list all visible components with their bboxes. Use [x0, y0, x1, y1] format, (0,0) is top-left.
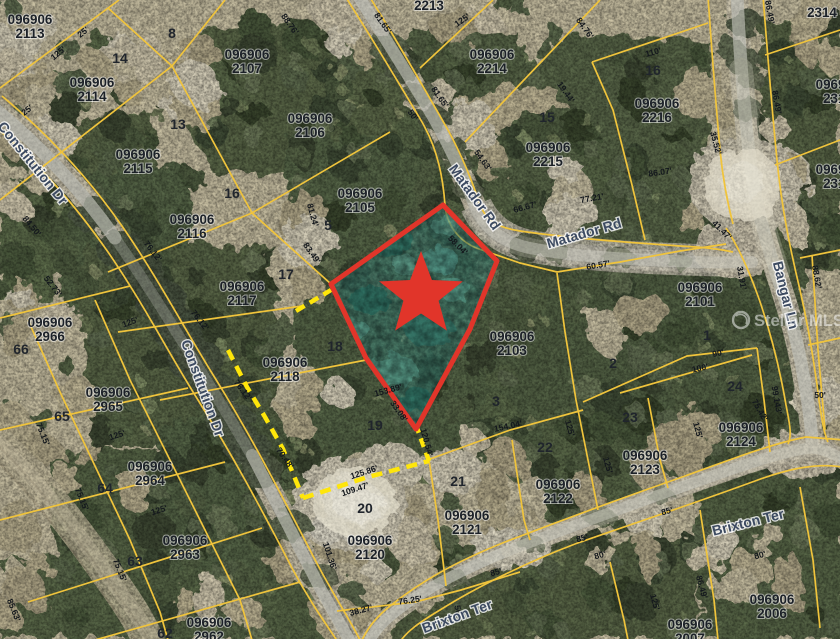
svg-text:2123: 2123: [630, 462, 660, 477]
svg-text:64: 64: [97, 480, 113, 496]
svg-text:096906: 096906: [263, 355, 308, 370]
svg-text:2103: 2103: [497, 343, 527, 358]
svg-text:096906: 096906: [750, 592, 795, 607]
svg-text:2116: 2116: [177, 226, 206, 241]
svg-text:24: 24: [727, 378, 743, 394]
svg-text:13: 13: [170, 116, 186, 132]
svg-text:2312: 2312: [823, 176, 840, 191]
svg-text:096906: 096906: [668, 617, 713, 632]
svg-text:23: 23: [622, 409, 638, 425]
svg-text:096906: 096906: [623, 448, 668, 463]
svg-text:21: 21: [450, 473, 466, 489]
svg-text:66: 66: [13, 341, 29, 357]
svg-text:096906: 096906: [28, 315, 73, 330]
svg-text:15: 15: [539, 109, 555, 125]
svg-text:2215: 2215: [533, 154, 563, 169]
svg-text:2121: 2121: [452, 522, 482, 537]
svg-text:096906: 096906: [536, 477, 581, 492]
svg-text:62: 62: [157, 625, 173, 639]
svg-text:5: 5: [324, 217, 332, 233]
svg-text:2007: 2007: [675, 631, 705, 639]
svg-text:14: 14: [112, 50, 128, 66]
svg-text:2115: 2115: [123, 161, 153, 176]
svg-text:2313: 2313: [823, 91, 840, 106]
svg-text:096906: 096906: [348, 533, 393, 548]
svg-text:2114: 2114: [77, 89, 107, 104]
svg-text:096906: 096906: [128, 459, 173, 474]
svg-text:1: 1: [703, 327, 711, 343]
svg-text:8: 8: [168, 25, 176, 41]
svg-text:2214: 2214: [477, 61, 507, 76]
svg-text:2117: 2117: [227, 293, 256, 308]
svg-text:096906: 096906: [816, 162, 840, 177]
svg-text:20: 20: [357, 500, 373, 516]
svg-text:096906: 096906: [816, 77, 840, 92]
svg-text:2113: 2113: [15, 26, 44, 41]
svg-text:50': 50': [814, 390, 826, 400]
svg-text:096906: 096906: [288, 111, 333, 126]
svg-text:2964: 2964: [135, 473, 165, 488]
svg-text:096906: 096906: [170, 212, 215, 227]
svg-text:3: 3: [492, 393, 500, 409]
svg-text:096906: 096906: [8, 12, 53, 27]
svg-text:096906: 096906: [445, 508, 490, 523]
svg-text:2213: 2213: [414, 0, 444, 13]
svg-text:2106: 2106: [295, 125, 325, 140]
svg-text:096906: 096906: [220, 279, 265, 294]
svg-text:2314: 2314: [807, 5, 837, 20]
svg-text:2965: 2965: [93, 399, 123, 414]
svg-text:2122: 2122: [543, 491, 573, 506]
svg-text:096906: 096906: [116, 147, 161, 162]
svg-text:2101: 2101: [685, 294, 715, 309]
svg-text:096906: 096906: [86, 385, 131, 400]
svg-text:16: 16: [224, 185, 240, 201]
svg-text:2120: 2120: [355, 547, 385, 562]
svg-text:18: 18: [327, 338, 343, 354]
svg-text:096906: 096906: [678, 280, 723, 295]
svg-text:16: 16: [645, 62, 661, 78]
svg-text:096906: 096906: [470, 47, 515, 62]
svg-text:096906: 096906: [70, 75, 115, 90]
svg-text:2962: 2962: [194, 629, 224, 639]
svg-text:Stellar MLS: Stellar MLS: [754, 312, 840, 330]
svg-text:2105: 2105: [345, 200, 375, 215]
svg-text:096906: 096906: [719, 420, 764, 435]
svg-text:2124: 2124: [726, 434, 756, 449]
svg-text:096906: 096906: [635, 96, 680, 111]
svg-text:096906: 096906: [338, 186, 383, 201]
svg-text:2963: 2963: [170, 547, 200, 562]
svg-text:2966: 2966: [35, 329, 65, 344]
svg-text:096906: 096906: [225, 47, 270, 62]
svg-text:2118: 2118: [270, 369, 300, 384]
svg-text:2216: 2216: [642, 110, 672, 125]
svg-text:096906: 096906: [526, 140, 571, 155]
svg-text:096906: 096906: [163, 533, 208, 548]
svg-text:2006: 2006: [757, 606, 787, 621]
svg-text:096906: 096906: [490, 329, 535, 344]
svg-text:096906: 096906: [187, 615, 232, 630]
svg-text:2107: 2107: [232, 61, 262, 76]
svg-text:63: 63: [127, 553, 143, 569]
svg-text:19: 19: [367, 417, 383, 433]
svg-text:65: 65: [54, 408, 70, 424]
svg-text:22: 22: [537, 439, 553, 455]
svg-text:2: 2: [609, 355, 617, 371]
svg-text:17: 17: [278, 266, 294, 282]
